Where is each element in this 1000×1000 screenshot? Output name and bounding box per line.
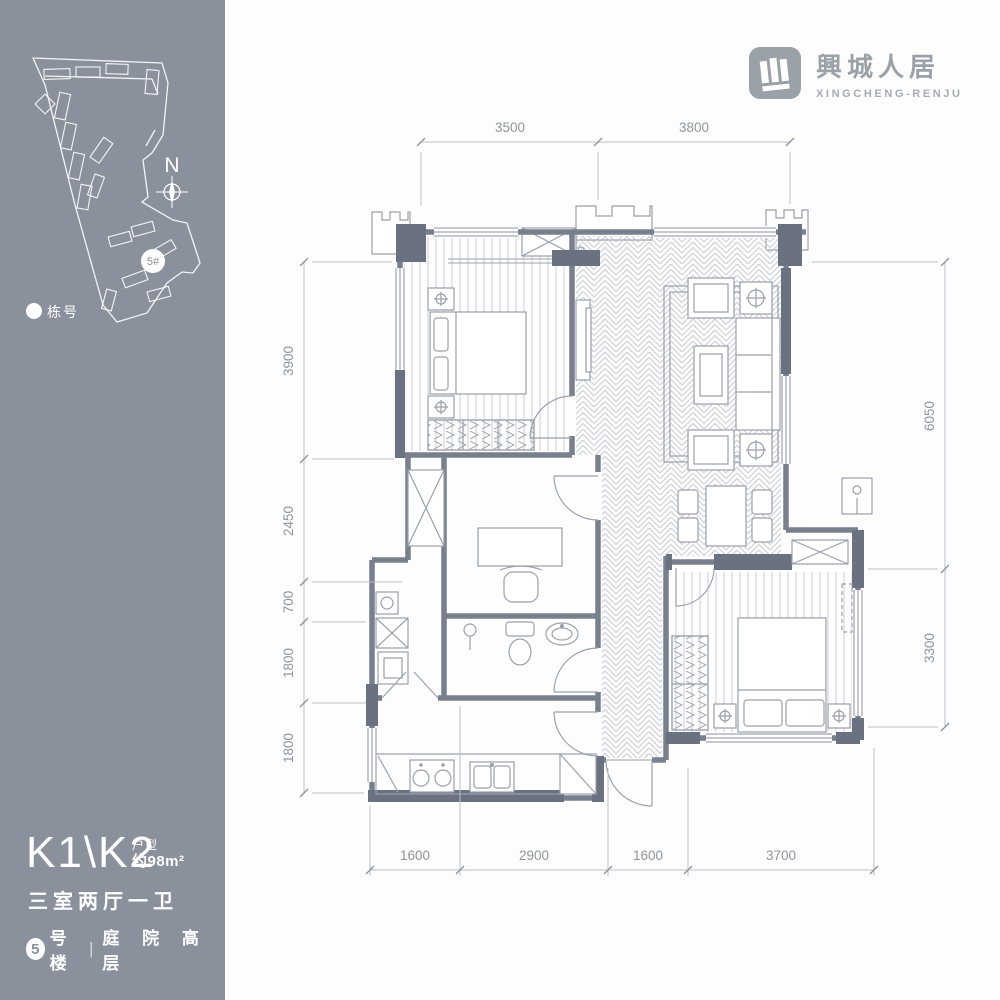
second-bedroom-wardrobe	[672, 636, 708, 730]
tv-cabinet	[576, 300, 591, 380]
study-door	[554, 476, 598, 520]
bathroom-sink	[546, 623, 578, 645]
coffee-table	[694, 346, 728, 404]
laundry-fixtures	[376, 592, 438, 698]
svg-text:2900: 2900	[519, 848, 549, 863]
dim-chain-top: 3500 3800	[417, 120, 794, 206]
svg-text:700: 700	[281, 591, 296, 614]
bath-door	[554, 648, 598, 692]
study-desk	[478, 528, 562, 602]
second-bed	[738, 618, 826, 732]
shower-head-icon	[464, 624, 476, 650]
svg-text:3700: 3700	[766, 848, 796, 863]
ac-shaft	[408, 470, 444, 546]
kitchen-door	[554, 712, 598, 756]
kitchen-counter	[376, 754, 596, 794]
entry-door	[606, 760, 652, 806]
water-heater	[842, 478, 872, 514]
svg-text:1800: 1800	[281, 733, 296, 763]
toilet	[506, 622, 534, 665]
floor-plan-drawing: 3500 3800 3900 2450 700 1800 1800 6050 3	[0, 0, 1000, 1000]
floorplan-page: 5# N 栋号 K1\K2 户型 约98m² 三室两厅一卫 5	[0, 0, 1000, 1000]
svg-text:3800: 3800	[679, 120, 709, 135]
dim-chain-left: 3900 2450 700 1800 1800	[281, 258, 402, 797]
sofa	[736, 318, 780, 430]
svg-text:1600: 1600	[633, 848, 663, 863]
svg-text:3300: 3300	[922, 633, 937, 663]
svg-text:1600: 1600	[400, 848, 430, 863]
master-bed	[430, 312, 526, 394]
svg-text:6050: 6050	[922, 401, 937, 431]
master-wardrobe	[428, 420, 534, 450]
svg-text:3500: 3500	[495, 120, 525, 135]
svg-text:2450: 2450	[281, 506, 296, 536]
ac-unit-bedroom2	[792, 540, 848, 564]
svg-text:3900: 3900	[281, 346, 296, 376]
svg-text:1800: 1800	[281, 648, 296, 678]
